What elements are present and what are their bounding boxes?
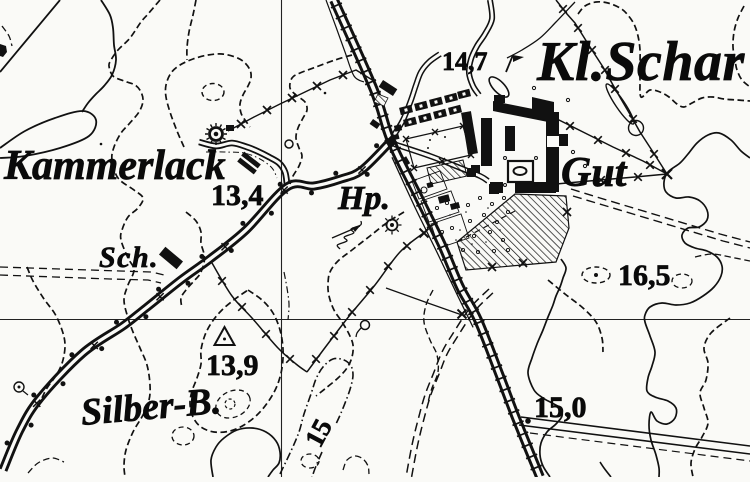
- svg-text:13,9: 13,9: [206, 349, 259, 382]
- svg-text:16,5: 16,5: [618, 259, 671, 292]
- svg-text:Gut: Gut: [561, 150, 628, 196]
- svg-text:Hp.: Hp.: [337, 180, 390, 217]
- svg-text:14,7: 14,7: [442, 47, 488, 76]
- svg-text:15,0: 15,0: [534, 391, 587, 424]
- svg-text:Kammerlack: Kammerlack: [3, 143, 226, 189]
- svg-text:Kl.Schar: Kl.Schar: [536, 31, 746, 93]
- svg-text:Sch.: Sch.: [99, 241, 159, 274]
- svg-text:13,4: 13,4: [211, 179, 264, 212]
